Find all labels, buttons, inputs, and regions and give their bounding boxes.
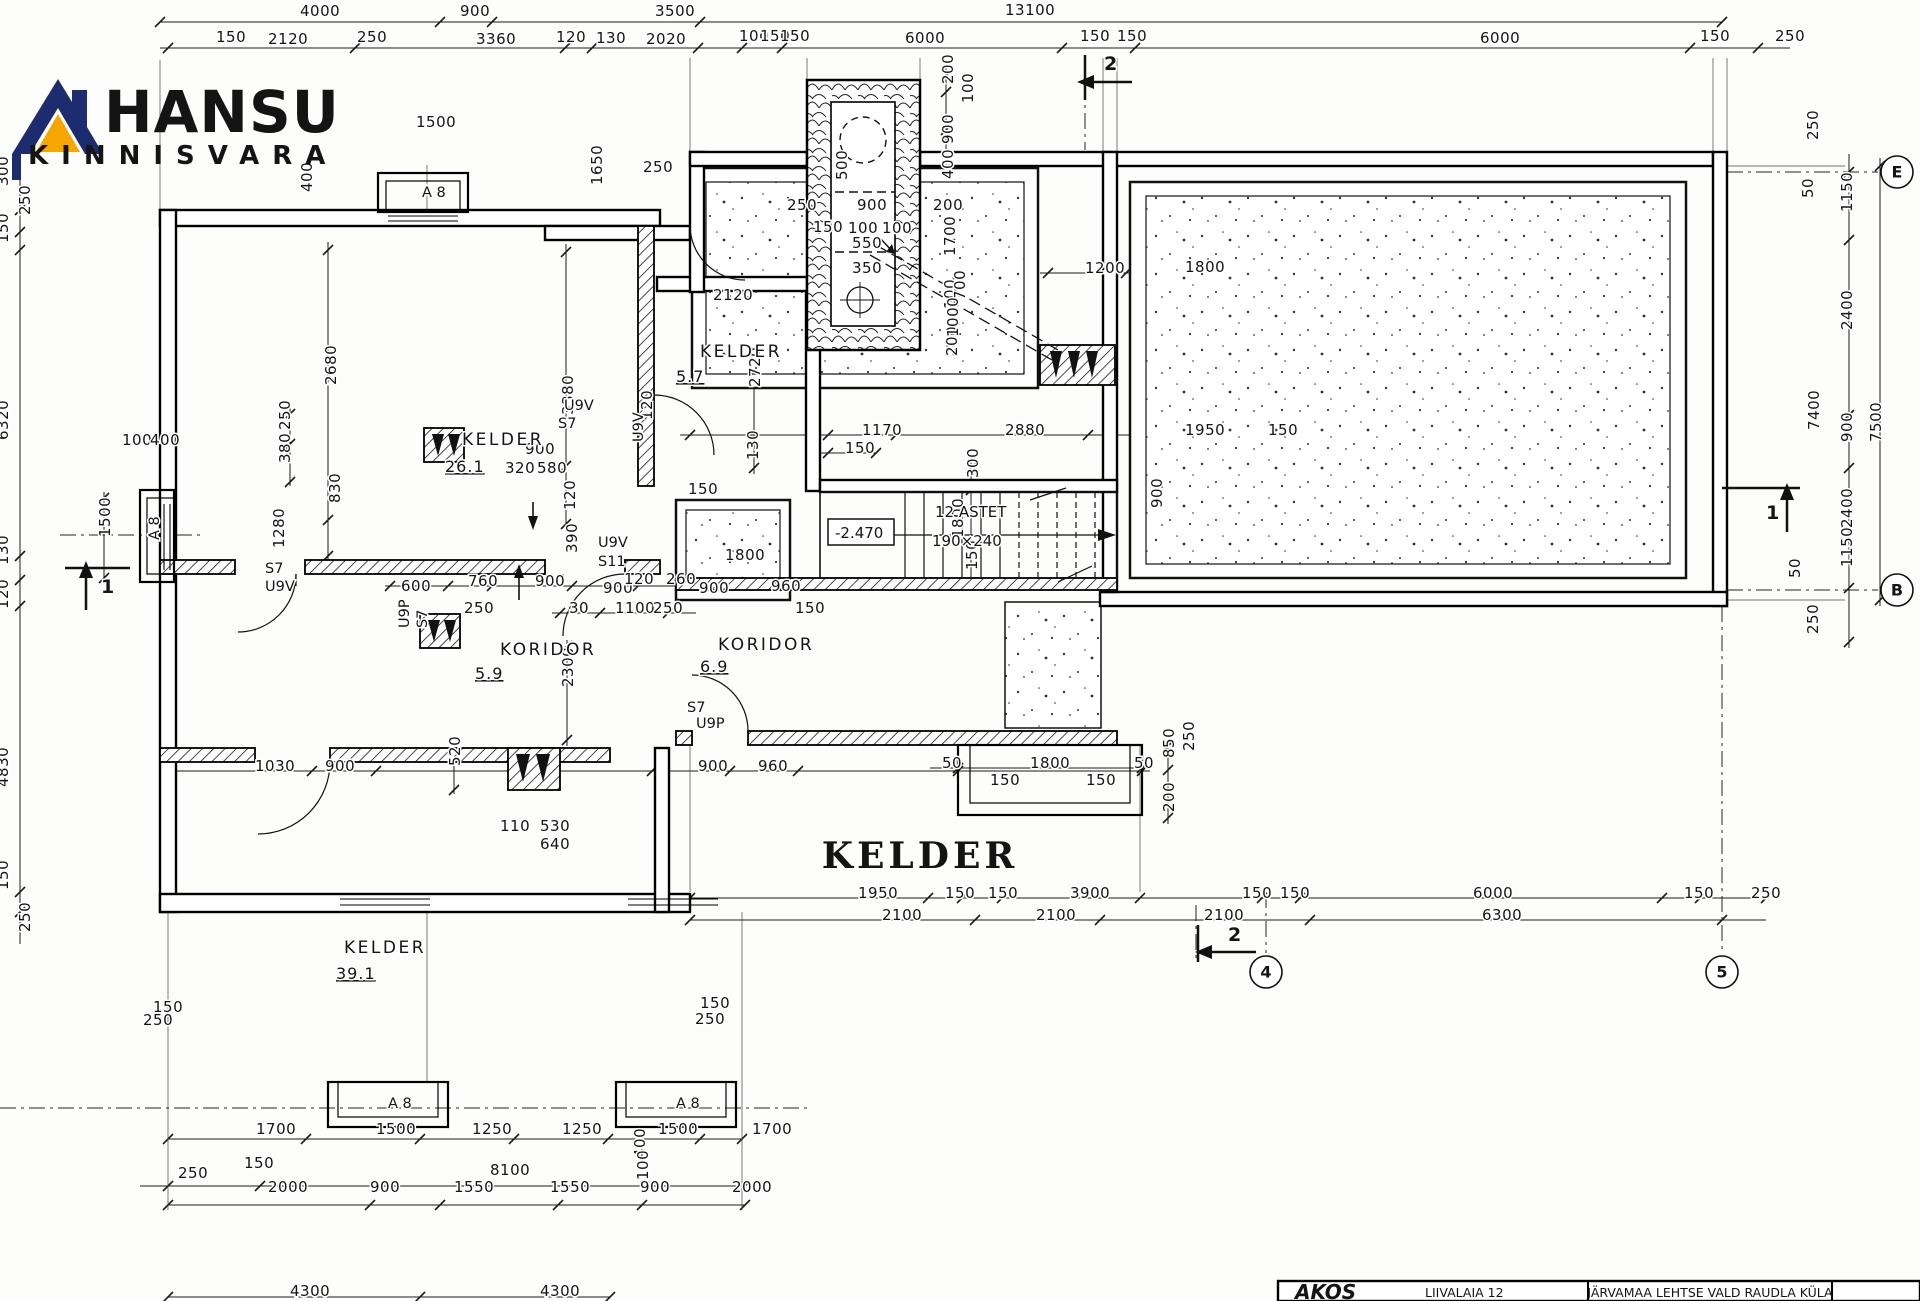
dimension-label: 150 <box>845 439 875 457</box>
dimension-label: 1700 <box>752 1120 792 1138</box>
dimension-label: 250 <box>16 185 34 215</box>
dimension-label: 900 <box>325 757 355 775</box>
dimension-label: 150 <box>0 213 12 243</box>
dimension-label: 250 <box>1775 27 1805 45</box>
dimension-label: 1250 <box>562 1120 602 1138</box>
door-swings <box>238 225 748 834</box>
door-label: S7 <box>265 561 283 577</box>
dimension-label: 1150 <box>1838 527 1856 567</box>
dimension-label: 2000 <box>268 1178 308 1196</box>
dimension-label: 2400 <box>1838 488 1856 528</box>
dimension-label: 1950 <box>858 884 898 902</box>
dimension-label: 960 <box>758 757 788 775</box>
dimension-label: 6000 <box>1473 884 1513 902</box>
room-name: KELDER <box>344 938 426 958</box>
dimension-label: 6000 <box>1480 29 1520 47</box>
grid-bubble-label: E <box>1892 163 1903 182</box>
dimension-label: 760 <box>468 572 498 590</box>
dimension-label: 150 <box>0 860 12 890</box>
dimension-label: 1200 <box>1085 259 1125 277</box>
door-label: S7 <box>415 610 431 628</box>
dimension-label: 1700 <box>256 1120 296 1138</box>
dimension-label: 2020 <box>646 30 686 48</box>
dimension-label: 1800 <box>1030 754 1070 772</box>
dimension-label: 200 <box>939 54 957 84</box>
dimension-label: 250 <box>357 28 387 46</box>
dimension-label: 2680 <box>322 345 340 385</box>
dimension-label: 2000 <box>732 1178 772 1196</box>
dimension-label: 100 <box>882 219 912 237</box>
dimension-label: 150 <box>780 27 810 45</box>
dimension-label: 550 <box>852 234 882 252</box>
dimension-label: 1250 <box>472 1120 512 1138</box>
door-label: S11 <box>598 554 626 570</box>
section-label: 1 <box>1766 502 1779 524</box>
dimension-label: 130 <box>0 535 12 565</box>
room-area: 39.1 <box>336 964 376 983</box>
dimension-label: 2120 <box>268 30 308 48</box>
dimension-label: 900 <box>699 579 729 597</box>
dimension-label: 1950 <box>1185 421 1225 439</box>
dimension-label: 1100 <box>615 599 655 617</box>
door-label: U9V <box>598 535 628 551</box>
dimension-label: 1030 <box>255 757 295 775</box>
dimension-label: 200 <box>933 196 963 214</box>
room-area: 6.9 <box>700 657 728 676</box>
section-label: 2 <box>1104 53 1117 75</box>
door-label: A 8 <box>676 1096 700 1112</box>
dimension-label: 250 <box>464 599 494 617</box>
dimension-label: 1500 <box>416 113 456 131</box>
dimension-label: 150 <box>945 884 975 902</box>
dimension-label: 120 <box>556 28 586 46</box>
door-label: A 8 <box>147 516 163 540</box>
dimension-label: 150 <box>1117 27 1147 45</box>
blueprint-page: EB45 40009003500131001502120250336012013… <box>0 0 1920 1301</box>
dimension-label: 150 <box>1080 27 1110 45</box>
dimension-label: 1650 <box>588 145 606 185</box>
dimension-label: 150 <box>988 884 1018 902</box>
dimension-label: 120 <box>624 570 654 588</box>
dimension-label: 900 <box>460 2 490 20</box>
dimension-label: 1500 <box>658 1120 698 1138</box>
dimension-label: 250 <box>695 1010 725 1028</box>
dimension-label: 6300 <box>1482 906 1522 924</box>
dimension-label: 150 <box>1086 771 1116 789</box>
dimension-label: 830 <box>326 473 344 503</box>
floor-plan-drawing: EB45 40009003500131001502120250336012013… <box>0 0 1920 1301</box>
dimension-label: 380 <box>276 433 294 463</box>
door-label: U9P <box>397 599 413 628</box>
dimension-label: 200 <box>1160 782 1178 812</box>
dimension-label: 150 <box>1700 27 1730 45</box>
dimension-label: 900 <box>698 757 728 775</box>
dimension-label: 2880 <box>1005 421 1045 439</box>
dimension-label: 520 <box>446 736 464 766</box>
dimension-label: 7500 <box>1867 402 1885 442</box>
logo-subtitle: KINNISVARA <box>28 141 338 171</box>
dimension-label: 390 <box>563 523 581 553</box>
room-name: KELDER <box>462 430 544 450</box>
dimension-label: 960 <box>771 577 801 595</box>
dimension-label: 250 <box>143 1011 173 1029</box>
section-label: 1 <box>101 576 114 598</box>
dimension-label: 1550 <box>454 1178 494 1196</box>
door-label: A 8 <box>388 1096 412 1112</box>
dimension-label: 100 <box>959 73 977 103</box>
dimension-label: 600 <box>401 577 431 595</box>
dimension-label: 900 <box>939 114 957 144</box>
dimension-label: 900 <box>370 1178 400 1196</box>
dimension-label: 150 <box>1280 884 1310 902</box>
dimension-label: 2100 <box>1036 906 1076 924</box>
dimension-label: 700 <box>951 270 969 300</box>
dimension-label: 8100 <box>490 1161 530 1179</box>
dimension-label: 100 <box>122 431 152 449</box>
dimension-label: 900 <box>857 196 887 214</box>
plan-title: KELDER <box>822 835 1019 877</box>
dimension-label: 580 <box>537 459 567 477</box>
dimension-label: 100 <box>634 1150 652 1180</box>
dimension-label: 6320 <box>0 400 12 440</box>
dimension-label: 120 <box>0 579 12 609</box>
title-block: AKOS LIIVALAIA 12 JÄRVAMAA LEHTSE VALD R… <box>1278 1280 1920 1301</box>
door-label: U9P <box>696 716 725 732</box>
title-block-address: LIIVALAIA 12 <box>1425 1285 1504 1300</box>
dimension-label: 250 <box>1804 604 1822 634</box>
dimension-label: 640 <box>540 835 570 853</box>
dimension-label: 150 <box>813 218 843 236</box>
door-label: S7 <box>687 700 705 716</box>
dimension-label: 150 <box>244 1154 274 1172</box>
dimension-label: 13100 <box>1005 1 1055 19</box>
title-block-location: JÄRVAMAA LEHTSE VALD RAUDLA KÜLA <box>1586 1284 1833 1300</box>
logo-title: HANSU <box>104 78 340 146</box>
dimension-label: 3360 <box>476 30 516 48</box>
room-area: 5.7 <box>676 367 704 386</box>
room-area: 26.1 <box>445 457 485 476</box>
stair-level: -2.470 <box>835 524 883 542</box>
dimension-label: 150 <box>688 480 718 498</box>
grid-bubble-label: 4 <box>1260 963 1271 982</box>
title-block-brand: AKOS <box>1293 1280 1356 1301</box>
dimension-label: 50 <box>1786 558 1804 578</box>
dimension-label: 250 <box>653 599 683 617</box>
dimension-label: 1280 <box>270 508 288 548</box>
dimension-label: 900 <box>1148 478 1166 508</box>
room-name: KORIDOR <box>500 640 596 660</box>
dimension-label: 2120 <box>713 286 753 304</box>
dimension-label: 2400 <box>1838 290 1856 330</box>
dimension-label: 250 <box>276 400 294 430</box>
dimension-label: 4300 <box>290 1282 330 1300</box>
dimension-label: 110 <box>500 817 530 835</box>
door-label: U9V <box>265 579 295 595</box>
dimension-label: 4300 <box>540 1282 580 1300</box>
dimension-label: 1550 <box>550 1178 590 1196</box>
dimension-label: 250 <box>787 196 817 214</box>
dimension-label: 2100 <box>1204 906 1244 924</box>
dimension-label: 7400 <box>1805 390 1823 430</box>
dimension-label: 150 <box>990 771 1020 789</box>
dimension-label: 500 <box>833 150 851 180</box>
dimension-label: 320 <box>505 459 535 477</box>
dimension-label: 130 <box>744 430 762 460</box>
room-name: KORIDOR <box>718 635 814 655</box>
dimension-label: 250 <box>178 1164 208 1182</box>
dimension-label: 150 <box>1684 884 1714 902</box>
dimension-label: 120 <box>561 480 579 510</box>
logo: HANSU KINNISVARA <box>12 78 340 180</box>
dimension-label: 1000 <box>944 297 962 337</box>
dimension-label: 900 <box>535 572 565 590</box>
dimension-label: 530 <box>540 817 570 835</box>
dimension-label: 250 <box>1180 721 1198 751</box>
dimension-label: 1800 <box>1185 258 1225 276</box>
dimension-label: 4830 <box>0 747 12 787</box>
dimension-label: 250 <box>643 158 673 176</box>
dimension-label: 1170 <box>862 421 902 439</box>
dimension-label: 250 <box>1751 884 1781 902</box>
dimension-label: 50 <box>1134 754 1154 772</box>
dimension-label: 150 <box>795 599 825 617</box>
dimension-label: 4000 <box>300 2 340 20</box>
dimension-label: 260 <box>666 570 696 588</box>
dimension-label: 850 <box>1160 728 1178 758</box>
door-label: U9V <box>564 398 594 414</box>
dimension-label: 2100 <box>882 906 922 924</box>
dimension-label: 400 <box>150 431 180 449</box>
dimension-label: 900 <box>1838 412 1856 442</box>
door-label: U9V <box>631 412 647 442</box>
dimension-label: 350 <box>852 259 882 277</box>
dimension-label: 1150 <box>1838 172 1856 212</box>
grid-bubble-label: 5 <box>1716 963 1727 982</box>
dimension-label: 130 <box>596 29 626 47</box>
dimension-label: 3500 <box>655 2 695 20</box>
dimension-label: 150 <box>1242 884 1272 902</box>
stair-step-size: 190×240 <box>932 532 1002 550</box>
dimension-label: 50 <box>942 754 962 772</box>
dimension-label: 3900 <box>1070 884 1110 902</box>
dimension-label: 30 <box>569 599 589 617</box>
stair-steps-label: 12 ASTET <box>935 503 1007 521</box>
dimension-label: 300 <box>0 156 12 186</box>
dimension-label: 1700 <box>941 216 959 256</box>
dimension-label: 300 <box>964 448 982 478</box>
dimension-label: 250 <box>1804 110 1822 140</box>
dimension-label: 400 <box>939 149 957 179</box>
dimension-label: 150 <box>1268 421 1298 439</box>
dimension-label: 1500 <box>96 497 114 537</box>
dimension-label: 1800 <box>725 546 765 564</box>
dimension-label: 150 <box>216 28 246 46</box>
room-area: 5.9 <box>475 664 503 683</box>
dimension-label: 250 <box>16 902 34 932</box>
door-label: A 8 <box>422 185 446 201</box>
grid-bubble-label: B <box>1891 581 1903 600</box>
door-label: S7 <box>558 416 576 432</box>
dimension-label: 1500 <box>376 1120 416 1138</box>
section-label: 2 <box>1228 924 1241 946</box>
room-name: KELDER <box>700 342 782 362</box>
dimension-label: 6000 <box>905 29 945 47</box>
dimension-label: 50 <box>1799 178 1817 198</box>
